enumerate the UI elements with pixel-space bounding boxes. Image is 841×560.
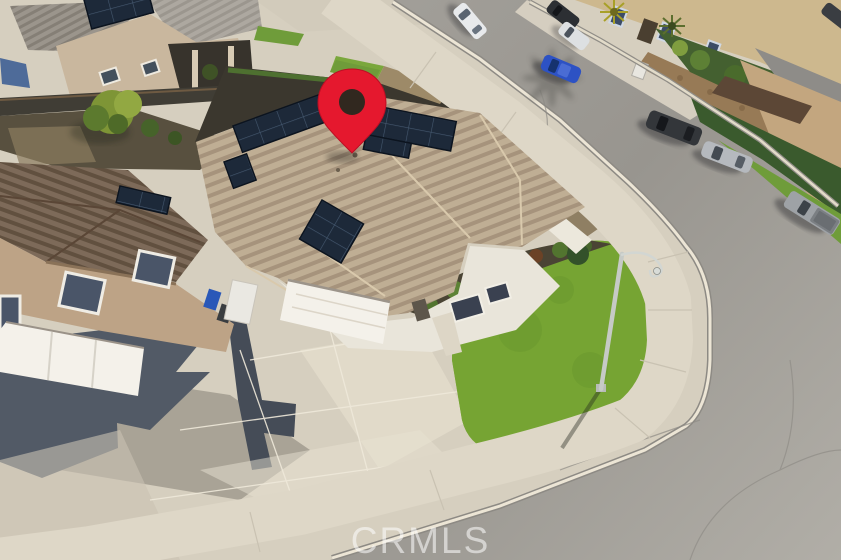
palm-green bbox=[659, 15, 685, 37]
pin-shadow bbox=[326, 151, 358, 163]
palm-yellow bbox=[600, 0, 628, 24]
aerial-photo: CRMLS bbox=[0, 0, 841, 560]
window bbox=[59, 272, 105, 314]
roof-vent bbox=[336, 168, 340, 172]
pin-hole bbox=[339, 89, 365, 115]
crmls-watermark: CRMLS bbox=[0, 520, 841, 560]
window bbox=[133, 251, 174, 288]
shrub bbox=[141, 119, 159, 137]
shrub bbox=[168, 131, 182, 145]
patio-post bbox=[192, 50, 198, 90]
aerial-photo-canvas bbox=[0, 0, 841, 560]
patio-plant bbox=[202, 64, 218, 80]
lamp-head bbox=[654, 268, 661, 275]
